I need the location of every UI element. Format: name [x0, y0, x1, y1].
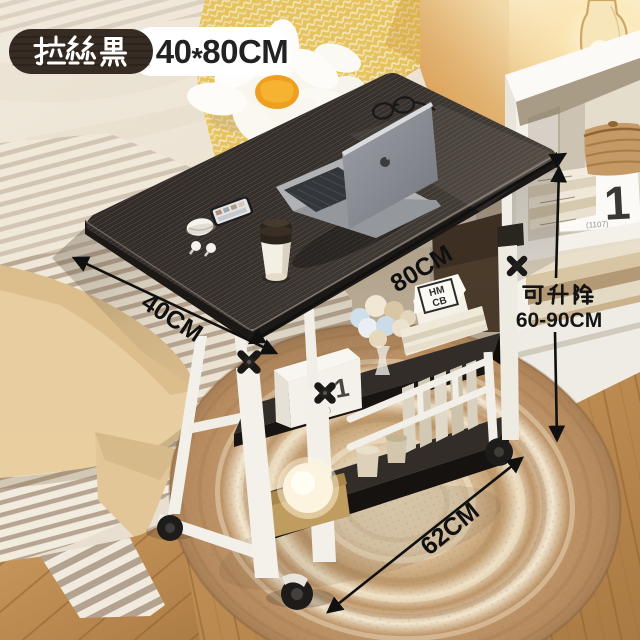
svg-text:60-90CM: 60-90CM — [516, 309, 602, 332]
svg-text:40*80CM: 40*80CM — [156, 33, 289, 75]
